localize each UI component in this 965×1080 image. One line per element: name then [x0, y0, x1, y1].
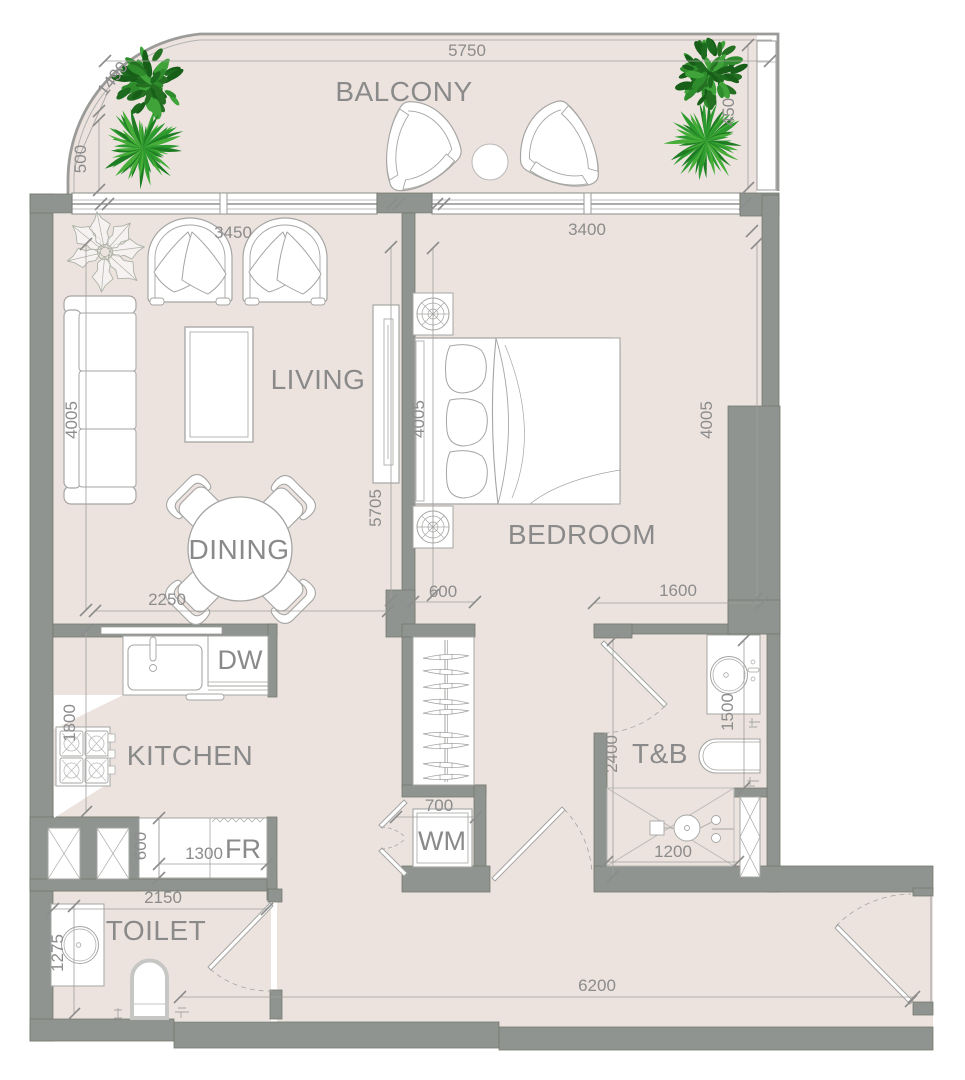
svg-text:LIVING: LIVING	[271, 364, 366, 395]
svg-text:3400: 3400	[568, 220, 606, 239]
svg-text:2150: 2150	[144, 888, 182, 907]
svg-text:KITCHEN: KITCHEN	[127, 740, 253, 771]
svg-text:600: 600	[429, 582, 457, 601]
svg-text:BEDROOM: BEDROOM	[508, 519, 656, 550]
svg-text:1300: 1300	[185, 844, 223, 863]
svg-text:6200: 6200	[578, 976, 616, 995]
svg-text:500: 500	[71, 145, 90, 173]
svg-text:DW: DW	[218, 645, 263, 675]
svg-text:1600: 1600	[659, 581, 697, 600]
svg-text:TOILET: TOILET	[106, 915, 207, 946]
svg-text:5750: 5750	[448, 41, 486, 60]
svg-text:1500: 1500	[718, 693, 737, 731]
svg-text:T&B: T&B	[632, 738, 688, 769]
svg-text:5705: 5705	[366, 489, 385, 527]
svg-text:2400: 2400	[602, 735, 621, 773]
svg-text:FR: FR	[225, 834, 261, 864]
svg-text:1275: 1275	[48, 934, 67, 972]
svg-text:600: 600	[131, 832, 150, 860]
svg-text:2250: 2250	[148, 590, 186, 609]
svg-text:DINING: DINING	[189, 534, 290, 565]
svg-text:3450: 3450	[214, 223, 252, 242]
svg-text:1800: 1800	[60, 704, 79, 742]
svg-text:4005: 4005	[697, 401, 716, 439]
svg-text:4005: 4005	[409, 400, 428, 438]
svg-text:BALCONY: BALCONY	[335, 76, 472, 107]
svg-text:450: 450	[719, 98, 738, 126]
svg-text:700: 700	[425, 796, 453, 815]
svg-text:1200: 1200	[654, 842, 692, 861]
svg-text:WM: WM	[418, 826, 466, 856]
svg-text:4005: 4005	[62, 401, 81, 439]
